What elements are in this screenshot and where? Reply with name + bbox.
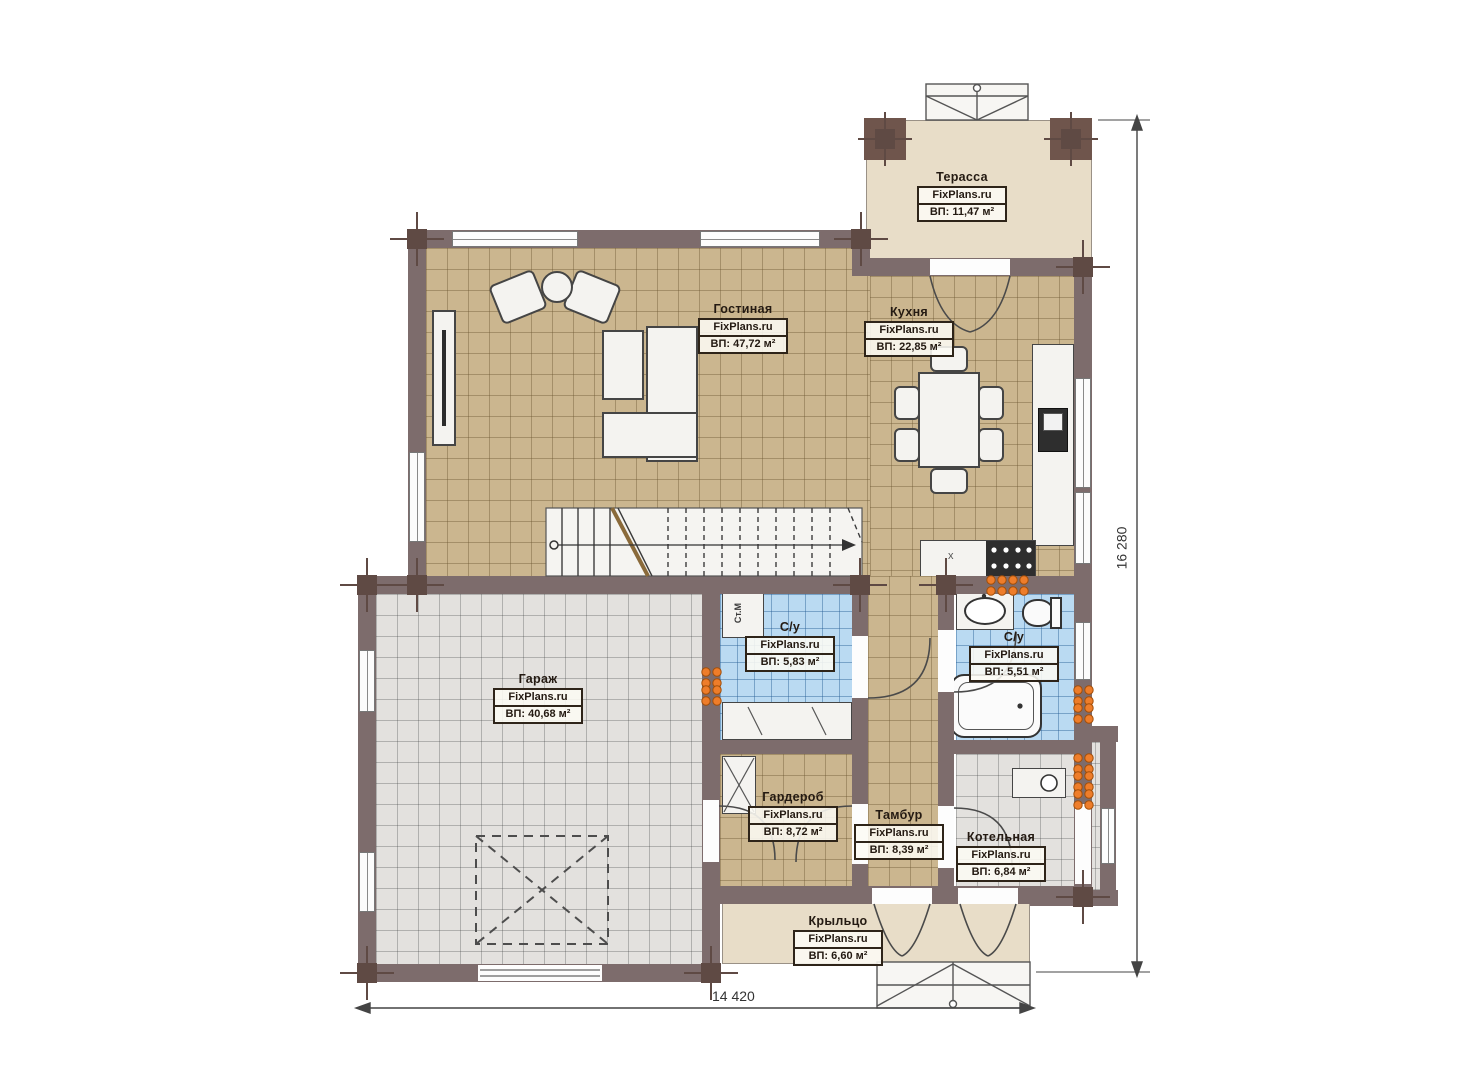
window xyxy=(1101,808,1115,864)
terrace-post-right xyxy=(1050,118,1092,160)
watermark: FixPlans.ru xyxy=(919,188,1005,205)
room-label-kitchen: Кухня FixPlans.ru ВП: 22,85 м² xyxy=(864,305,954,357)
window xyxy=(1075,378,1091,488)
wall-mid-horizontal xyxy=(358,576,1092,594)
garage-door-opening xyxy=(478,965,602,981)
room-name: Гостиная xyxy=(698,302,788,316)
bathtub xyxy=(950,674,1042,738)
wall-garage-right xyxy=(702,594,720,982)
room-area: ВП: 40,68 м² xyxy=(495,707,581,722)
watermark: FixPlans.ru xyxy=(747,638,833,655)
room-area: ВП: 5,51 м² xyxy=(971,665,1057,680)
door-gap-bath1 xyxy=(852,636,868,698)
room-name: Тамбур xyxy=(854,808,944,822)
room-name: Гардероб xyxy=(748,790,838,804)
dimension-vertical: 16 280 xyxy=(1113,527,1129,570)
wall-bath2-boiler xyxy=(954,740,1074,754)
room-label-vestibule: Тамбур FixPlans.ru ВП: 8,39 м² xyxy=(854,808,944,860)
watermark: FixPlans.ru xyxy=(700,320,786,337)
room-area: ВП: 8,72 м² xyxy=(750,825,836,840)
window xyxy=(1075,492,1091,564)
room-area: ВП: 8,39 м² xyxy=(856,843,942,858)
coffee-table xyxy=(541,271,573,303)
window xyxy=(359,852,375,912)
washing-machine-label: Ст.М xyxy=(733,603,743,623)
room-name: С/у xyxy=(745,620,835,634)
dining-chair xyxy=(978,428,1004,462)
room-name: Крыльцо xyxy=(793,914,883,928)
room-area: ВП: 6,60 м² xyxy=(795,949,881,964)
dining-chair xyxy=(978,386,1004,420)
door-gap-porch-2 xyxy=(958,888,1018,904)
room-label-wardrobe: Гардероб FixPlans.ru ВП: 8,72 м² xyxy=(748,790,838,842)
room-area: ВП: 47,72 м² xyxy=(700,337,786,352)
room-name: Гараж xyxy=(493,672,583,686)
room-name: Котельная xyxy=(956,830,1046,844)
wall-bump-bottom xyxy=(1030,890,1118,906)
sink-bowl xyxy=(964,597,1006,625)
room-label-porch: Крыльцо FixPlans.ru ВП: 6,60 м² xyxy=(793,914,883,966)
tv-screen xyxy=(442,330,446,426)
window xyxy=(700,231,820,247)
room-area: ВП: 11,47 м² xyxy=(919,205,1005,220)
kitchen-unit-mark: x xyxy=(948,550,954,562)
stove xyxy=(986,541,1035,577)
room-name: Кухня xyxy=(864,305,954,319)
room-name: Терасса xyxy=(917,170,1007,184)
corridor-opening xyxy=(868,576,938,594)
wall-garage-left xyxy=(358,576,376,982)
door-gap-terrace xyxy=(930,259,1010,275)
window xyxy=(409,452,425,542)
dining-table xyxy=(918,372,980,468)
dining-chair xyxy=(894,386,920,420)
wall-left-living xyxy=(408,248,426,594)
room-label-bath1: С/у FixPlans.ru ВП: 5,83 м² xyxy=(745,620,835,672)
room-area: ВП: 6,84 м² xyxy=(958,865,1044,880)
door-gap-boiler-right xyxy=(1075,804,1091,884)
sofa-chaise xyxy=(602,330,644,400)
terrace-steps xyxy=(926,84,1028,120)
watermark: FixPlans.ru xyxy=(958,848,1044,865)
watermark: FixPlans.ru xyxy=(856,826,942,843)
floor-plan: x Ст.М xyxy=(0,0,1473,1080)
dining-chair xyxy=(894,428,920,462)
door-gap-porch-1 xyxy=(872,888,932,904)
sofa-seat xyxy=(602,412,698,458)
porch-steps xyxy=(877,962,1030,1008)
watermark: FixPlans.ru xyxy=(750,808,836,825)
wall-bath1-wardrobe xyxy=(720,740,852,754)
boiler-unit xyxy=(1012,768,1066,798)
kitchen-sink-unit xyxy=(1038,408,1068,452)
dimension-horizontal: 14 420 xyxy=(712,988,755,1004)
dining-chair xyxy=(930,468,968,494)
room-label-boiler: Котельная FixPlans.ru ВП: 6,84 м² xyxy=(956,830,1046,882)
window xyxy=(452,231,578,247)
room-label-bath2: С/у FixPlans.ru ВП: 5,51 м² xyxy=(969,630,1059,682)
window xyxy=(1075,622,1091,680)
toilet-tank xyxy=(1050,597,1062,629)
window xyxy=(359,650,375,712)
room-name: С/у xyxy=(969,630,1059,644)
room-label-garage: Гараж FixPlans.ru ВП: 40,68 м² xyxy=(493,672,583,724)
watermark: FixPlans.ru xyxy=(971,648,1057,665)
door-gap-bath2 xyxy=(938,630,954,692)
terrace-post-left xyxy=(864,118,906,160)
room-label-terrace: Терасса FixPlans.ru ВП: 11,47 м² xyxy=(917,170,1007,222)
watermark: FixPlans.ru xyxy=(866,323,952,340)
room-area: ВП: 22,85 м² xyxy=(866,340,952,355)
watermark: FixPlans.ru xyxy=(495,690,581,707)
watermark: FixPlans.ru xyxy=(795,932,881,949)
room-label-living: Гостиная FixPlans.ru ВП: 47,72 м² xyxy=(698,302,788,354)
bath1-cabinet xyxy=(722,702,852,740)
door-gap-garage-wardrobe xyxy=(703,800,719,862)
garage-floor xyxy=(376,594,702,964)
room-area: ВП: 5,83 м² xyxy=(747,655,833,670)
